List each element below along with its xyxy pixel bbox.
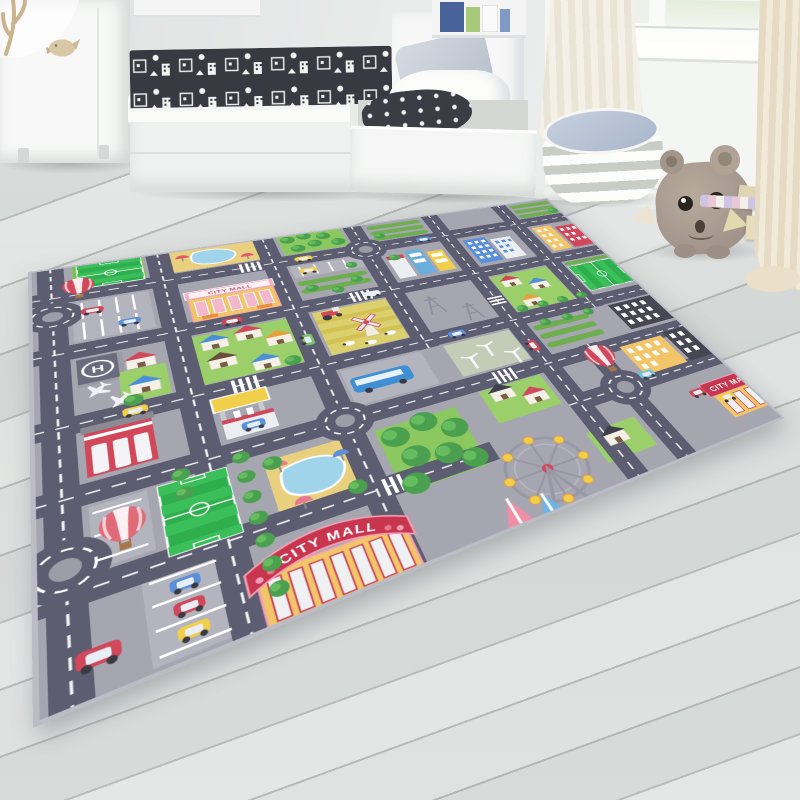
city-play-rug: CITY MALL H: [28, 198, 785, 728]
right-curtain-pool: [745, 266, 800, 292]
hippo-eye: [678, 196, 693, 211]
right-curtain: [754, 0, 800, 290]
rug-design: CITY MALL H: [28, 198, 785, 728]
kids-room-photo: CITY MALL H: [0, 0, 800, 800]
hippo-mouth: [688, 228, 714, 240]
striped-pouf: [541, 105, 666, 207]
rug-wrapper: CITY MALL H: [0, 0, 800, 800]
